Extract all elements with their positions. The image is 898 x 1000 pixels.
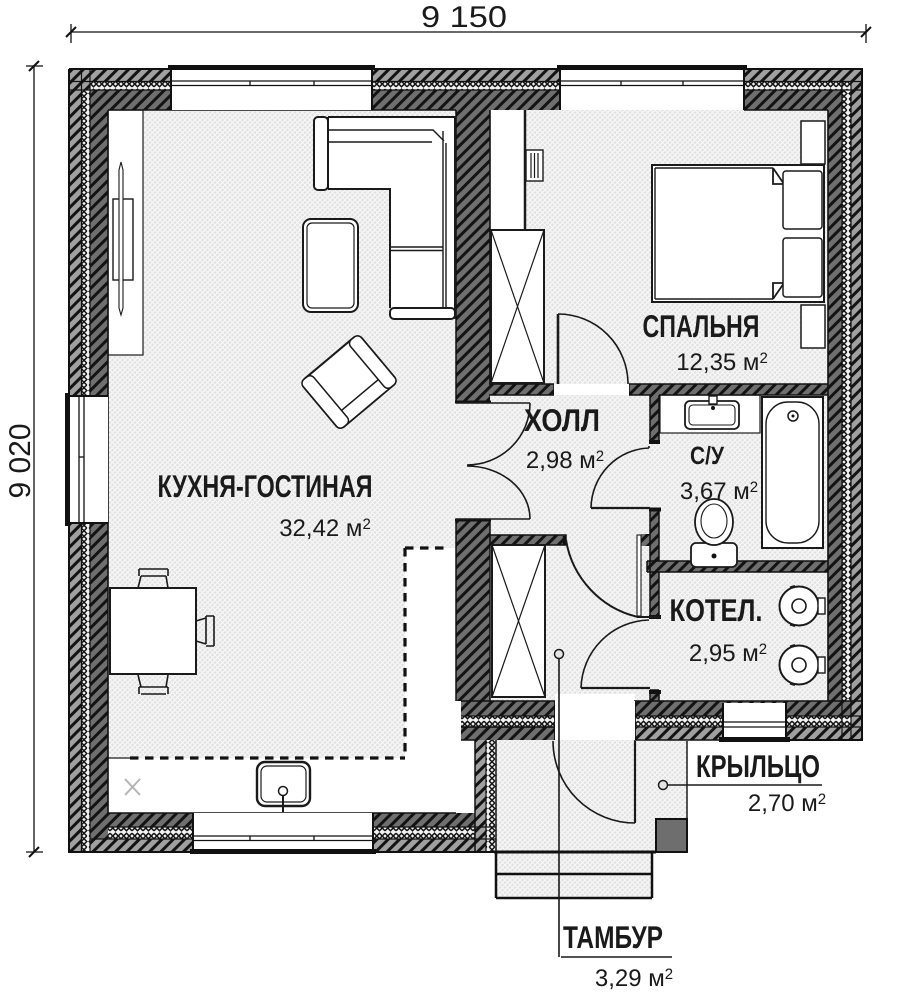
svg-text:2,98 м2: 2,98 м2	[526, 447, 604, 474]
svg-text:32,42 м2: 32,42 м2	[279, 515, 371, 542]
svg-text:СПАЛЬНЯ: СПАЛЬНЯ	[643, 308, 760, 344]
svg-text:ХОЛЛ: ХОЛЛ	[524, 402, 600, 438]
svg-text:2,95 м2: 2,95 м2	[689, 640, 767, 667]
svg-text:КРЫЛЬЦО: КРЫЛЬЦО	[696, 748, 820, 784]
svg-text:12,35 м2: 12,35 м2	[676, 349, 768, 376]
svg-text:КУХНЯ-ГОСТИНАЯ: КУХНЯ-ГОСТИНАЯ	[158, 468, 373, 504]
svg-text:9 020: 9 020	[4, 423, 37, 498]
svg-text:3,29 м2: 3,29 м2	[595, 965, 673, 992]
svg-text:ТАМБУР: ТАМБУР	[563, 919, 663, 955]
svg-text:С/У: С/У	[690, 442, 724, 470]
svg-text:2,70 м2: 2,70 м2	[748, 790, 826, 817]
svg-text:9 150: 9 150	[421, 1, 507, 34]
svg-text:3,67 м2: 3,67 м2	[680, 478, 758, 505]
svg-text:КОТЕЛ.: КОТЕЛ.	[670, 592, 763, 628]
